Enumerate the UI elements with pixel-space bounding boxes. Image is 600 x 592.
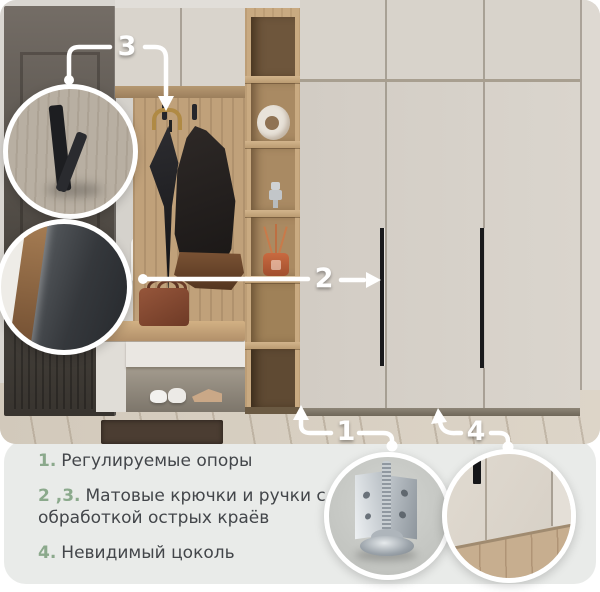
bracket-hole: [401, 489, 408, 497]
threaded-rod: [382, 461, 391, 539]
feature-text: Матовые крючки и ручки с обработкой остр…: [38, 486, 326, 527]
wall-beyond: [553, 454, 571, 526]
wardrobe-side-panel: [580, 0, 600, 390]
hook-shadow: [46, 183, 102, 197]
foot-base: [360, 536, 414, 556]
sneaker: [150, 390, 167, 403]
wardrobe-top-cabinets: [300, 0, 580, 80]
leather-bag: [139, 288, 189, 326]
shelf-bar: [245, 276, 301, 283]
feature-item-2-3: 2 ,3.Матовые крючки и ручки с обработкой…: [38, 486, 338, 529]
bracket-hole: [399, 511, 406, 519]
handle-edge-inset: [0, 219, 132, 355]
feature-item-1: 1.Регулируемые опоры: [38, 451, 338, 472]
wardrobe-plinth-shadow: [300, 408, 580, 416]
diffuser-bottle: [263, 253, 289, 276]
leveler-foot-inset: [324, 452, 452, 580]
feature-item-4: 4.Невидимый цоколь: [38, 543, 338, 564]
coat-hook: [192, 104, 197, 120]
feature-text: Невидимый цоколь: [61, 543, 234, 563]
feature-number: 1.: [38, 451, 56, 471]
callout-number-4: 4: [464, 417, 488, 447]
shelf-cell: [251, 283, 295, 342]
door-seam: [485, 454, 487, 540]
floor-plank-lines: [442, 524, 576, 583]
handle-sliver: [473, 458, 481, 484]
floor-closeup: [442, 521, 576, 583]
wardrobe-seam: [483, 0, 485, 80]
diffuser-label: [271, 260, 281, 270]
vase-hole: [265, 116, 279, 130]
product-infographic: 3 2 1 4: [0, 0, 600, 592]
callout-number-1: 1: [334, 417, 358, 447]
door-handle: [380, 228, 384, 366]
callout-number-3: 3: [115, 32, 139, 62]
shelf-bar: [245, 210, 301, 217]
door-handle: [480, 228, 484, 368]
wardrobe-seam: [385, 82, 387, 410]
bench-drawer: [126, 341, 245, 367]
bracket-hole: [363, 491, 370, 499]
bench-left-panel: [96, 340, 128, 412]
plinth-closeup-inset: [442, 449, 576, 583]
feature-number: 2 ,3.: [38, 486, 81, 506]
sneaker: [168, 388, 186, 403]
donut-vase: [257, 105, 290, 140]
figurine-head: [271, 182, 280, 190]
figurine-legs: [273, 200, 278, 208]
shelf-bar: [245, 76, 301, 83]
wardrobe-seam: [385, 0, 387, 80]
wardrobe-doors: [300, 82, 580, 410]
bracket-hole: [365, 513, 371, 520]
hallway-photo: [0, 0, 600, 444]
cabinet-seam: [180, 8, 182, 86]
umbrella-handle: [152, 108, 182, 130]
robot-figurine: [266, 182, 286, 208]
bench-recess: [126, 366, 245, 412]
shelf-cell: [251, 17, 295, 76]
figurine-body: [269, 190, 282, 200]
shelf-bar: [245, 342, 301, 349]
shelf-base-shadow: [245, 407, 301, 414]
feature-list: 1.Регулируемые опоры 2 ,3.Матовые крючки…: [38, 451, 338, 579]
feature-text: Регулируемые опоры: [61, 451, 252, 471]
hook-closeup-inset: [3, 84, 138, 219]
doormat: [101, 420, 223, 444]
shelf-cell: [251, 349, 295, 407]
callout-number-2: 2: [312, 264, 336, 294]
feature-number: 4.: [38, 543, 56, 563]
shelf-bar: [245, 141, 301, 148]
